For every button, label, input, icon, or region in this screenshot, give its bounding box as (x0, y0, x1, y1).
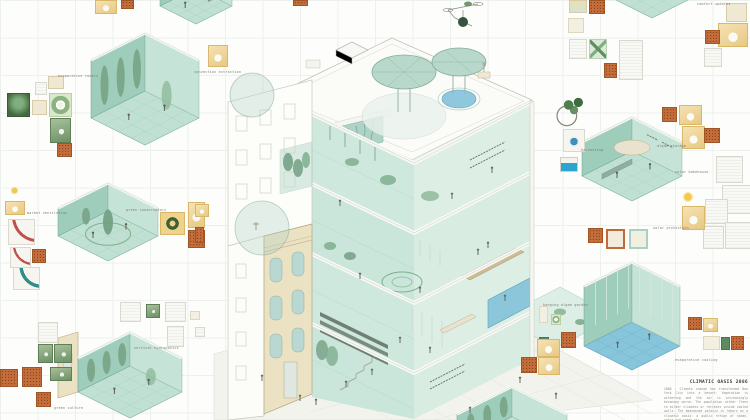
room-green-conservatory (58, 183, 158, 261)
machine-card (718, 23, 748, 47)
room-evaporative-towers (91, 33, 199, 145)
round-pool (442, 90, 476, 108)
pale-card (703, 336, 720, 350)
sketch-card (725, 222, 750, 249)
water-card (560, 157, 578, 172)
framed-art-card (606, 229, 625, 249)
figure-card (703, 318, 718, 332)
lamp-card (679, 105, 702, 125)
sketch-card (703, 226, 724, 249)
leaf-x-card (589, 39, 607, 59)
label-solar-protection: solar protection (653, 226, 689, 230)
clay-swatch (57, 143, 72, 157)
clay-swatch (293, 0, 308, 6)
clay-swatch (195, 227, 204, 243)
label-solar-bakehouse: solar bakehouse (675, 170, 709, 174)
figure-card (538, 357, 560, 375)
canopy-dome (362, 93, 446, 139)
bottles-card (704, 48, 722, 67)
text-card (165, 302, 186, 322)
project-description: 2086 - Climate change has transformed Ne… (664, 387, 748, 420)
figure-card (195, 204, 209, 217)
entrance-door (284, 362, 297, 398)
figure-card (95, 0, 117, 14)
room-ceiling-garden (608, 0, 696, 18)
curve-card (13, 267, 40, 290)
label-hanging-algae-garden: hanging algae garden (543, 303, 588, 307)
table-sketch-card (716, 156, 743, 183)
figure-card (208, 45, 228, 67)
sketch-card (705, 199, 728, 224)
label-harvesting: harvesting (581, 148, 603, 152)
clay-swatch (705, 30, 720, 44)
bubble-mid (235, 201, 289, 255)
figure-green-card (7, 93, 30, 117)
dome-card (569, 39, 587, 59)
tree-sketch (556, 96, 592, 128)
label-green-culture: green culture (54, 406, 83, 410)
pale-card (568, 18, 584, 33)
curve-card (10, 247, 31, 268)
clay-swatch (588, 228, 603, 243)
room-algae-kitchen (582, 117, 682, 201)
drone-windmill (443, 2, 483, 28)
label-comfort-updates: comfort updates (697, 2, 731, 6)
framed-art-card (629, 229, 648, 249)
pale-card (190, 311, 200, 320)
clay-swatch (731, 336, 744, 350)
clay-swatch (604, 63, 617, 78)
wreath-card (160, 212, 185, 235)
clay-swatch (662, 107, 677, 122)
green-card (54, 344, 72, 363)
head-card (50, 118, 71, 143)
room-evaporative-cooling (584, 262, 680, 370)
clay-swatch (22, 367, 42, 387)
room-roof-fragment (160, 0, 232, 24)
clay-swatch (589, 0, 605, 14)
curve-card (8, 219, 35, 245)
label-vertical-hydroponics: vertical hydroponics (134, 346, 179, 350)
green-card (38, 344, 53, 363)
title-block: CLIMATIC OASIS 2086 2086 - Climate chang… (664, 380, 748, 420)
drone-pod (458, 17, 468, 27)
statue-plinth (478, 72, 490, 78)
green-card (50, 367, 72, 381)
sun-icon (682, 191, 694, 203)
door-card (38, 322, 58, 343)
roof-vent (306, 60, 320, 68)
label-evaporative-towers: evaporative towers (58, 74, 98, 78)
green-card (146, 304, 160, 318)
curve-card (5, 201, 25, 215)
sun-dot (10, 186, 19, 195)
strip-card (721, 337, 730, 350)
label-market-ventilation: market ventilation (27, 211, 67, 215)
cup-plant-icon (551, 314, 561, 325)
clay-swatch (521, 357, 537, 373)
poster-canvas: evaporative towersconvection extractionc… (0, 0, 750, 420)
clay-swatch (0, 369, 18, 387)
strip-card (539, 306, 548, 323)
face-sketch-card (619, 40, 643, 80)
circle-icon-card (195, 327, 205, 337)
clay-swatch (704, 128, 720, 143)
green-wall (280, 142, 312, 194)
hanger-card (167, 326, 184, 347)
clay-swatch (688, 317, 702, 330)
label-convection-extraction: convection extraction (194, 70, 241, 74)
clay-swatch (36, 392, 51, 407)
clay-swatch (121, 0, 134, 9)
label-green-conservatory: green conservatory (126, 208, 166, 212)
label-algae-storage: algae storage (657, 144, 686, 148)
label-evaporative-cooling: evaporative cooling (675, 358, 718, 362)
clay-swatch (32, 249, 46, 263)
tan-lines-card (32, 100, 47, 115)
plant-card (537, 339, 560, 357)
gradient-card (569, 0, 587, 13)
project-title: CLIMATIC OASIS 2086 (664, 380, 748, 385)
green-ring-card (49, 93, 72, 117)
clay-swatch (561, 332, 576, 348)
cup-icon-card (35, 82, 47, 95)
bubble-top (230, 73, 274, 117)
shelf-card (120, 302, 141, 322)
